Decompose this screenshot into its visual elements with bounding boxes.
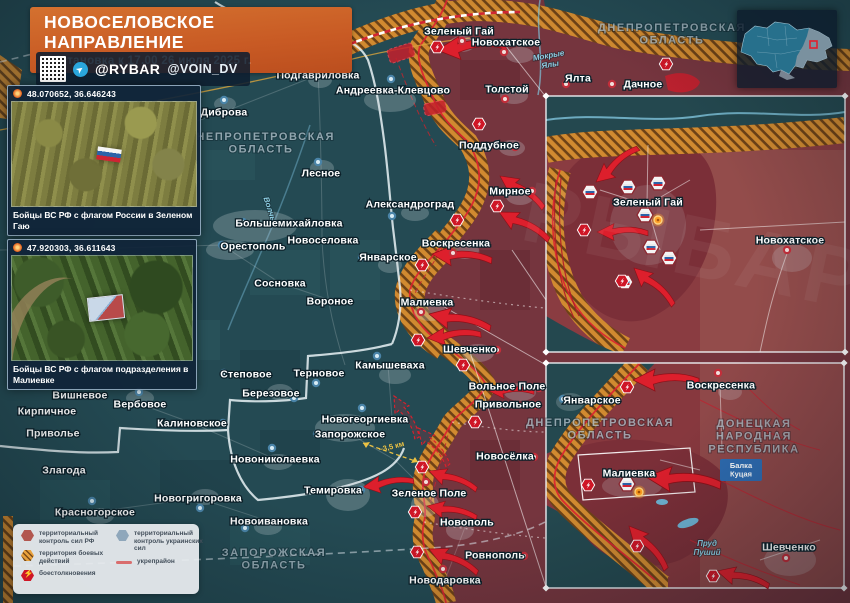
location-pin-icon xyxy=(13,243,22,252)
town-label: Ровнополь xyxy=(465,550,525,562)
clash-icon xyxy=(415,461,428,473)
town-label: Новодаровка xyxy=(409,575,481,587)
town-label: Зеленое Поле xyxy=(392,488,467,500)
rybar-handle: @RYBAR xyxy=(95,61,160,77)
credits-bar: ➤ @RYBAR @VOIN_DV xyxy=(36,52,250,86)
town-label: Красногорское xyxy=(55,507,135,519)
town-dot xyxy=(389,213,395,219)
clash-icon xyxy=(456,359,469,371)
clash-icon xyxy=(577,224,590,236)
water-label: ПрудПуший xyxy=(693,539,720,557)
town-label: Вишневое xyxy=(52,390,107,402)
town-dot xyxy=(197,505,203,511)
town-label: Новополь xyxy=(440,517,494,529)
town-label: Темировка xyxy=(304,485,362,497)
town-dot xyxy=(89,498,95,504)
town-label: Лесное xyxy=(302,168,341,180)
ukraine-locator-map xyxy=(737,10,837,88)
clash-icon xyxy=(410,546,423,558)
photo1-image xyxy=(11,101,197,207)
town-label: Сосновка xyxy=(254,278,306,290)
town-dot xyxy=(221,97,227,103)
legend: территориальный контроль сил РФ территор… xyxy=(13,524,199,594)
town-label: Новоселовка xyxy=(288,235,359,247)
town-label: Запорожское xyxy=(315,429,386,441)
orange-marker xyxy=(633,486,646,499)
legend-item-fortified: укрепрайон xyxy=(116,558,209,566)
town-label: Вольное Поле xyxy=(469,381,546,393)
town-label: Большемихайловка xyxy=(235,218,342,230)
town-dot xyxy=(450,250,456,256)
photo-card-malievka: 47.920303, 36.611643 Бойцы ВС РФ с флаго… xyxy=(7,239,197,390)
town-label: Александроград xyxy=(366,199,455,211)
town-label: Малиевка xyxy=(401,297,454,309)
legend-item-clashes: боестолкновения xyxy=(21,570,111,581)
legend-label: территория боевых действий xyxy=(39,550,111,565)
hatch-strip-bottomleft xyxy=(3,516,13,603)
russian-flag-marker xyxy=(582,185,598,199)
map-poster: ДНЕПРОПЕТРОВСКАЯОБЛАСТЬДНЕПРОПЕТРОВСКАЯО… xyxy=(0,0,850,603)
town-label: Новохатское xyxy=(756,235,825,247)
town-label: Березовое xyxy=(242,388,299,400)
town-dot xyxy=(315,159,321,165)
photo-card-zeleny-gai: 48.070652, 36.646243 Бойцы ВС РФ с флаго… xyxy=(7,85,201,236)
clash-icon xyxy=(411,334,424,346)
town-label: Новохатское xyxy=(472,37,541,49)
unit-flag xyxy=(86,294,124,322)
town-label: Диброва xyxy=(201,107,248,119)
legend-item-battle-zone: территория боевых действий xyxy=(21,550,111,565)
town-dot xyxy=(459,38,465,44)
clash-icon xyxy=(615,275,628,287)
town-label: Январское xyxy=(563,395,620,407)
inset-zeleny-gai xyxy=(546,96,845,352)
town-dot xyxy=(502,96,508,102)
clash-icon xyxy=(581,479,594,491)
map-title: НОВОСЕЛОВСКОЕ НАПРАВЛЕНИЕ xyxy=(44,12,352,52)
town-label: Терновое xyxy=(293,368,344,380)
clash-icon xyxy=(706,570,719,582)
photo2-image xyxy=(11,255,193,361)
town-label: Андреевка-Клевцово xyxy=(336,85,450,97)
town-label: Злагода xyxy=(42,465,86,477)
battle-zone-icon xyxy=(21,550,34,561)
legend-label: боестолкновения xyxy=(39,570,111,578)
town-dot xyxy=(359,405,365,411)
town-label: Привольное xyxy=(475,399,542,411)
town-dot xyxy=(313,380,319,386)
clash-icon xyxy=(21,570,34,581)
russian-flag-marker xyxy=(650,176,666,190)
legend-label: укрепрайон xyxy=(137,558,209,566)
town-dot xyxy=(269,445,275,451)
town-dot xyxy=(501,49,507,55)
town-dot xyxy=(440,566,446,572)
town-dot xyxy=(388,76,394,82)
russian-flag xyxy=(96,146,122,162)
clash-icon xyxy=(490,200,503,212)
town-label: Приволье xyxy=(26,428,79,440)
clash-icon xyxy=(659,58,672,70)
clash-icon xyxy=(630,540,643,552)
clash-icon xyxy=(620,381,633,393)
town-dot xyxy=(423,479,429,485)
town-dot xyxy=(784,247,790,253)
legend-item-ua-control: территориальный контроль украинских сил xyxy=(116,530,209,553)
town-label: Шевченко xyxy=(762,542,816,554)
town-label: Толстой xyxy=(485,84,529,96)
clash-icon xyxy=(415,259,428,271)
ua-zone-icon xyxy=(116,530,129,541)
town-label: Новосёлка xyxy=(476,451,534,463)
voin-dv-handle: @VOIN_DV xyxy=(167,62,237,76)
qr-code xyxy=(40,56,66,82)
clash-icon xyxy=(430,41,443,53)
photo1-coordinates: 48.070652, 36.646243 xyxy=(27,89,116,99)
town-label: Камышеваха xyxy=(355,360,425,372)
town-label: Новониколаевка xyxy=(230,454,320,466)
town-dot xyxy=(374,353,380,359)
town-label: Зеленый Гай xyxy=(613,197,683,209)
clash-icon xyxy=(450,214,463,226)
town-label: Калиновское xyxy=(157,418,227,430)
orange-marker xyxy=(652,214,665,227)
legend-item-rf-control: территориальный контроль сил РФ xyxy=(21,530,111,545)
clash-icon xyxy=(408,506,421,518)
town-dot xyxy=(418,309,424,315)
legend-label: территориальный контроль сил РФ xyxy=(39,530,111,545)
photo1-caption: Бойцы ВС РФ с флагом России в Зеленом Га… xyxy=(8,207,200,235)
town-label: Малиевка xyxy=(603,468,656,480)
town-dot xyxy=(715,370,721,376)
town-label: Вороное xyxy=(307,296,354,308)
town-label: Новоивановка xyxy=(230,516,308,528)
town-label: Поддубное xyxy=(459,140,519,152)
town-label: Вербовое xyxy=(114,399,167,411)
town-dot xyxy=(609,81,615,87)
town-label: Январское xyxy=(359,252,416,264)
photo2-caption: Бойцы ВС РФ с флагом подразделения в Мал… xyxy=(8,361,196,389)
town-label: Дачное xyxy=(624,79,663,91)
town-label: Орестополь xyxy=(220,241,286,253)
balka-kutsaya-label: БалкаКуцая xyxy=(730,461,753,479)
town-label: Воскресенка xyxy=(687,380,755,392)
town-label: Воскресенка xyxy=(422,238,490,250)
legend-label: территориальный контроль украинских сил xyxy=(134,530,206,553)
russian-flag-marker xyxy=(661,251,677,265)
photo2-coordinates: 47.920303, 36.611643 xyxy=(27,243,116,253)
russian-flag-marker xyxy=(637,208,653,222)
russian-flag-marker xyxy=(643,240,659,254)
town-dot xyxy=(783,555,789,561)
region-label: ДОНЕЦКАЯНАРОДНАЯРЕСПУБЛИКА xyxy=(708,418,799,455)
town-label: Новогригоровка xyxy=(154,493,242,505)
rf-zone-icon xyxy=(21,530,34,541)
town-label: Мирное xyxy=(489,186,530,198)
clash-icon xyxy=(472,118,485,130)
location-pin-icon xyxy=(13,89,22,98)
town-label: Новогеоргиевка xyxy=(322,414,409,426)
clash-icon xyxy=(468,416,481,428)
telegram-icon: ➤ xyxy=(73,62,88,77)
fortified-line-icon xyxy=(116,561,132,564)
town-label: Шевченко xyxy=(443,344,497,356)
russian-flag-marker xyxy=(620,180,636,194)
town-label: Ялта xyxy=(565,73,591,85)
town-label: Степовое xyxy=(220,369,272,381)
town-label: Кирпичное xyxy=(18,406,77,418)
